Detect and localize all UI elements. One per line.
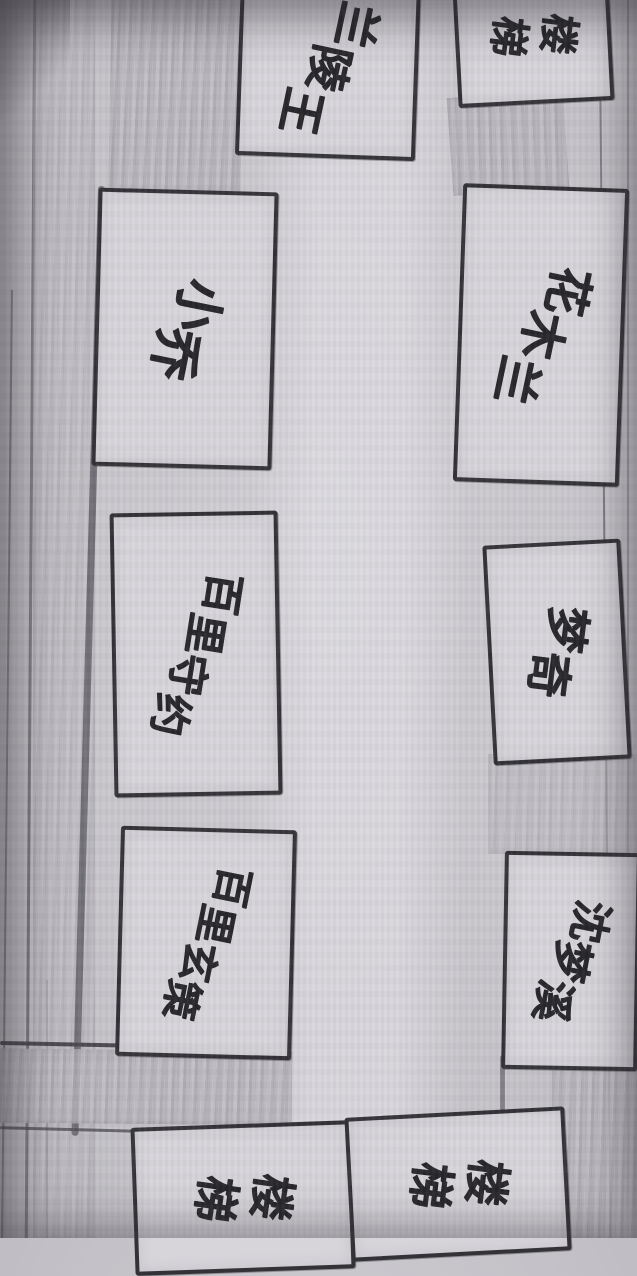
room-shenmengxi: 沈梦溪 (501, 851, 637, 1071)
room-stairs-top-label: 楼梯 (456, 0, 611, 104)
room-huamulan: 花木兰 (453, 183, 629, 487)
wall-shading-top-left (108, 0, 243, 195)
room-mengqi: 梦奇 (482, 539, 631, 766)
room-mengqi-label: 梦奇 (487, 543, 628, 762)
room-bailixuance-label: 百里玄策 (119, 830, 293, 1056)
room-xiaoqiao-label: 小乔 (95, 192, 274, 466)
room-bailixuance: 百里玄策 (115, 826, 297, 1061)
room-xiaoqiao: 小乔 (91, 188, 278, 471)
room-huamulan-label: 花木兰 (457, 187, 625, 482)
room-bailishouyue: 百里守约 (110, 511, 283, 798)
room-lanlingwang: 兰陵王 (235, 0, 421, 161)
room-stairs-bottom-right-label: 楼梯 (349, 1111, 568, 1258)
room-stairs-bottom-left: 楼梯 (130, 1120, 355, 1276)
room-stairs-top: 楼梯 (451, 0, 614, 108)
room-bailishouyue-label: 百里守约 (114, 515, 279, 794)
room-shenmengxi-label: 沈梦溪 (505, 855, 637, 1067)
room-stairs-bottom-right: 楼梯 (344, 1106, 571, 1261)
room-stairs-bottom-left-label: 楼梯 (135, 1124, 352, 1271)
wall-shading-right-mid (488, 754, 637, 854)
room-lanlingwang-label: 兰陵王 (239, 0, 417, 157)
wall-shading-bottom-left (0, 1048, 292, 1125)
